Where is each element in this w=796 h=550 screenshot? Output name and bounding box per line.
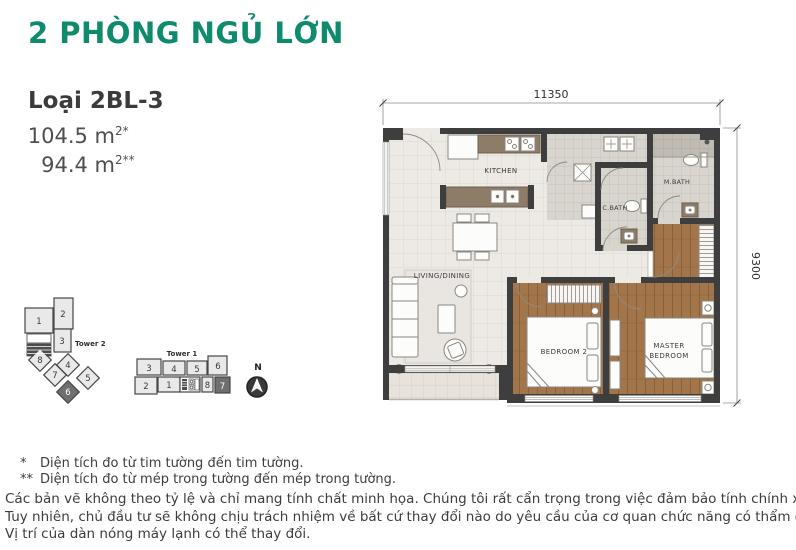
footnote-2-text: Diện tích đo từ mép trong tường đến mép …: [40, 472, 396, 488]
dimension-top-value: 11350: [534, 88, 569, 101]
cbath-door-opening: [603, 245, 627, 251]
master-window: [619, 396, 701, 402]
bedroom2-window: [525, 396, 593, 402]
living-side-window: [383, 142, 389, 215]
disclaimer-line-1: Các bản vẽ không theo tỷ lệ và chỉ mang …: [5, 491, 796, 509]
area-gross-value: 104.5 m: [27, 124, 115, 148]
tower2-core: [27, 334, 51, 343]
footnote-1-text: Diện tích đo từ tim tường đến tim tường.: [40, 456, 304, 472]
tower2-unit-5-label: 5: [85, 374, 90, 384]
sofa: [392, 277, 418, 357]
footnote-1-marker: *: [20, 456, 40, 472]
mbath-toilet-icon: [684, 153, 708, 167]
area-gross-sup: 2*: [115, 124, 129, 138]
area-net: 94.4 m2**: [27, 153, 135, 177]
tower1-keyplan: Tower 1 3 4 5 6 2 1 8 7: [130, 348, 245, 410]
tower1-unit-1-label: 1: [166, 381, 171, 391]
tower2-unit-7-label: 7: [52, 371, 57, 381]
master-wardrobe: [699, 225, 714, 283]
bedroom2-wardrobe: [547, 285, 601, 303]
living-dining-label: LIVING/DINING: [414, 272, 470, 280]
tower2-unit-1-label: 1: [36, 317, 41, 327]
area-net-sup: 2**: [115, 153, 135, 167]
floor-hall: [595, 251, 653, 277]
dimension-right-value: 9300: [749, 252, 762, 280]
disclaimer-line-2: Tuy nhiên, chủ đầu tư sẽ không chịu trác…: [5, 509, 796, 527]
tower2-unit-3-label: 3: [59, 337, 64, 347]
mbath-door-opening: [658, 218, 680, 224]
tower2-label: Tower 2: [75, 340, 106, 348]
dimension-top: [380, 99, 724, 125]
tower1-unit-5-label: 5: [194, 365, 199, 375]
tower2-unit-2-label: 2: [60, 310, 65, 320]
cbath-sink-icon: [621, 229, 637, 243]
coffee-table: [438, 305, 455, 333]
cbath-label: C.BATH: [602, 204, 627, 212]
side-table: [455, 285, 467, 297]
tower1-unit-7-label: 7: [220, 382, 225, 392]
master-door-opening: [615, 277, 641, 283]
kitchen-label: KITCHEN: [484, 167, 517, 175]
shower-head-icon: [705, 140, 710, 145]
disclaimer-line-3: Vị trí của dàn nóng máy lạnh có thể thay…: [5, 526, 796, 544]
master-bedroom-label-1: MASTER: [653, 342, 684, 350]
mbath-sink-icon: [682, 203, 698, 217]
fridge-cabinet: [448, 135, 478, 159]
floor-balcony: [389, 373, 499, 400]
tower1-unit-8-label: 8: [205, 381, 210, 391]
compass-icon: N: [240, 360, 276, 404]
tower2-unit-8-label: 8: [37, 356, 42, 366]
armchair: [444, 339, 466, 361]
entry-opening: [403, 128, 440, 134]
floor-plan: 11350 9300: [375, 85, 770, 415]
bedroom2-label: BEDROOM 2: [541, 348, 588, 356]
mbath-label: M.BATH: [664, 178, 690, 186]
tower1-unit-4-label: 4: [171, 365, 176, 375]
footnote-2: ** Diện tích đo từ mép trong tường đến m…: [20, 472, 396, 488]
footnote-1: * Diện tích đo từ tim tường đến tim tườn…: [20, 456, 396, 472]
unit-type-label: Loại 2BL-3: [28, 88, 164, 114]
bedroom2-door-opening: [517, 277, 541, 283]
master-desk: [610, 320, 620, 356]
tower1-unit-6-label: 6: [215, 362, 220, 372]
area-net-value: 94.4 m: [27, 153, 115, 177]
master-bedroom-label-2: BEDROOM: [649, 352, 688, 360]
footnote-2-marker: **: [20, 472, 40, 488]
tower1-unit-2-label: 2: [143, 382, 148, 392]
floorplan-brochure-page: 2 PHÒNG NGỦ LỚN Loại 2BL-3 104.5 m2* 94.…: [0, 0, 796, 550]
disclaimer: Các bản vẽ không theo tỷ lệ và chỉ mang …: [5, 491, 796, 544]
tower2-unit-4-label: 4: [65, 361, 70, 371]
balcony-slider-window: [405, 366, 495, 372]
tower1-label: Tower 1: [167, 350, 198, 358]
page-title: 2 PHÒNG NGỦ LỚN: [28, 16, 344, 50]
corridor-door-leaf: [648, 251, 653, 277]
shower-stall-icon: [574, 164, 591, 181]
cbath-toilet-icon: [625, 199, 648, 213]
lamp-icon: [592, 308, 599, 315]
footnotes: * Diện tích đo từ tim tường đến tim tườn…: [20, 456, 396, 488]
master-desk: [610, 361, 620, 389]
dimension-right: [723, 125, 741, 407]
tower2-keyplan: 1 2 3 8 7 4 5 6 Tower 2: [15, 293, 130, 428]
tower2-unit-6-label: 6: [65, 388, 70, 398]
compass-north-label: N: [254, 363, 262, 373]
tower1-unit-3-label: 3: [146, 364, 151, 374]
lamp-icon: [592, 387, 599, 394]
area-gross: 104.5 m2*: [27, 124, 129, 148]
